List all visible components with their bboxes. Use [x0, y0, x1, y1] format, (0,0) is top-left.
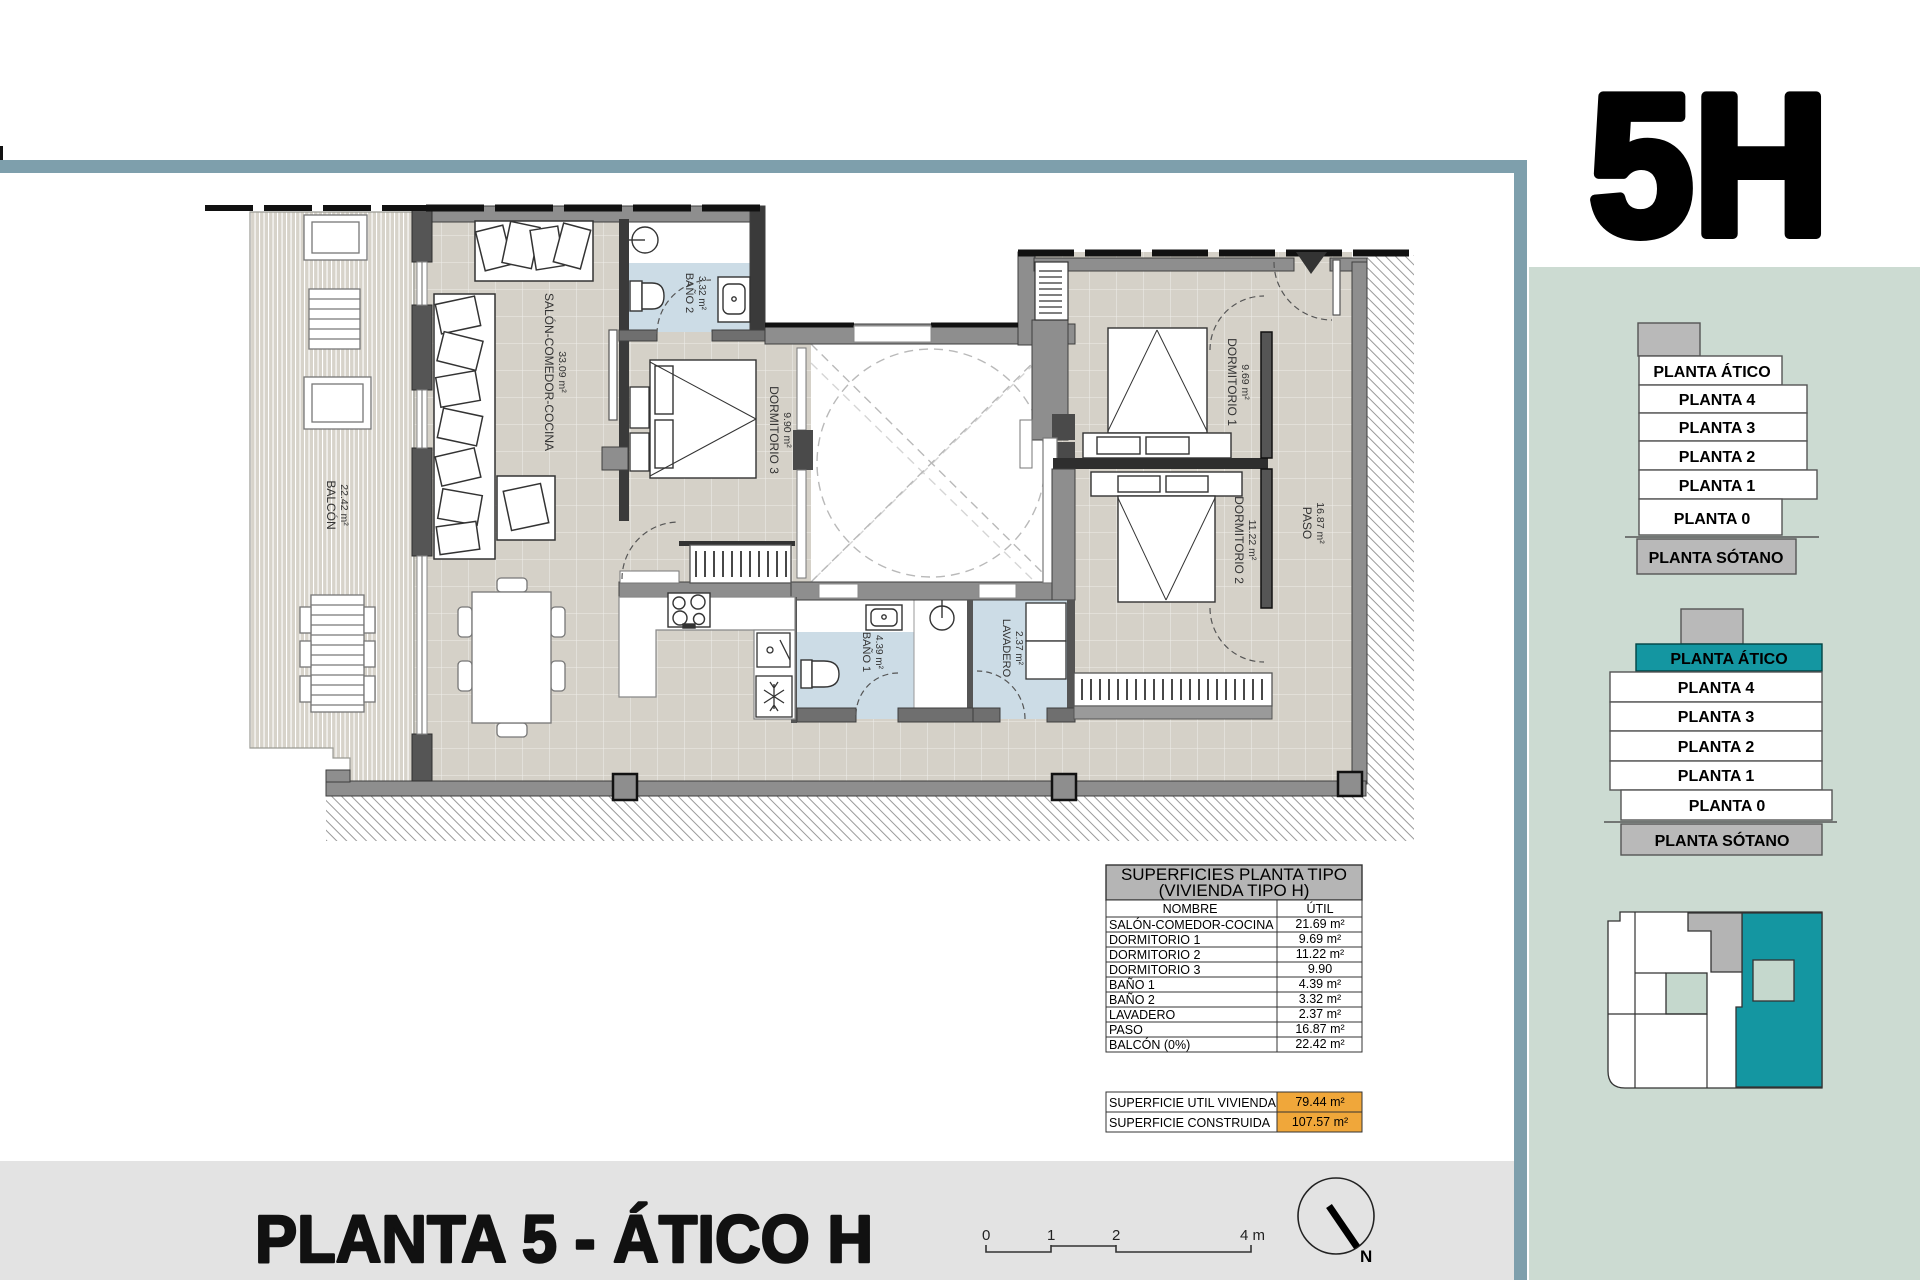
svg-text:(VIVIENDA TIPO H): (VIVIENDA TIPO H) [1159, 881, 1310, 900]
svg-text:BALCÓN (0%): BALCÓN (0%) [1109, 1037, 1190, 1052]
svg-text:0: 0 [982, 1227, 990, 1244]
svg-text:BAÑO 1: BAÑO 1 [860, 632, 873, 672]
svg-text:4 m: 4 m [1240, 1227, 1265, 1244]
svg-text:PASO: PASO [1300, 507, 1314, 539]
svg-text:DORMITORIO 2: DORMITORIO 2 [1109, 948, 1200, 962]
svg-text:DORMITORIO 1: DORMITORIO 1 [1109, 933, 1200, 947]
svg-text:3.32 m²: 3.32 m² [696, 276, 707, 311]
svg-text:PLANTA 2: PLANTA 2 [1679, 449, 1756, 466]
svg-text:NOMBRE: NOMBRE [1163, 902, 1218, 916]
svg-text:9.90 m²: 9.90 m² [781, 412, 793, 448]
svg-text:PLANTA 4: PLANTA 4 [1678, 680, 1755, 697]
svg-text:PLANTA 5 - ÁTICO H: PLANTA 5 - ÁTICO H [255, 1202, 873, 1277]
svg-text:N: N [1360, 1247, 1372, 1266]
svg-text:PLANTA SÓTANO: PLANTA SÓTANO [1655, 831, 1790, 850]
svg-text:PLANTA 1: PLANTA 1 [1678, 768, 1755, 785]
svg-text:16.87 m²: 16.87 m² [1295, 1022, 1344, 1036]
svg-text:107.57 m²: 107.57 m² [1292, 1115, 1348, 1129]
svg-text:22.42 m²: 22.42 m² [1295, 1037, 1344, 1051]
svg-text:BAÑO 2: BAÑO 2 [683, 273, 696, 313]
svg-text:PASO: PASO [1109, 1023, 1143, 1037]
svg-text:5H: 5H [1589, 54, 1829, 277]
svg-text:PLANTA 4: PLANTA 4 [1679, 392, 1756, 409]
svg-text:PLANTA 0: PLANTA 0 [1689, 798, 1766, 815]
svg-text:DORMITORIO 3: DORMITORIO 3 [1109, 963, 1200, 977]
svg-text:PLANTA SÓTANO: PLANTA SÓTANO [1649, 548, 1784, 567]
svg-text:2: 2 [1112, 1227, 1120, 1244]
svg-text:4.39 m²: 4.39 m² [1299, 977, 1341, 991]
svg-text:BAÑO 1: BAÑO 1 [1109, 978, 1155, 992]
svg-text:SUPERFICIE UTIL VIVIENDA: SUPERFICIE UTIL VIVIENDA [1109, 1096, 1277, 1110]
svg-text:PLANTA 0: PLANTA 0 [1674, 511, 1751, 528]
svg-text:3.32 m²: 3.32 m² [1299, 992, 1341, 1006]
svg-text:9.69 m²: 9.69 m² [1239, 364, 1251, 400]
svg-text:PLANTA ÁTICO: PLANTA ÁTICO [1670, 649, 1787, 668]
svg-text:SALÓN-COMEDOR-COCINA: SALÓN-COMEDOR-COCINA [1109, 917, 1274, 932]
svg-text:1: 1 [1047, 1227, 1055, 1244]
svg-text:LAVADERO: LAVADERO [1000, 619, 1012, 678]
svg-text:SUPERFICIE CONSTRUIDA: SUPERFICIE CONSTRUIDA [1109, 1116, 1271, 1130]
svg-text:PLANTA 1: PLANTA 1 [1679, 478, 1756, 495]
svg-text:9.69 m²: 9.69 m² [1299, 932, 1341, 946]
svg-text:LAVADERO: LAVADERO [1109, 1008, 1176, 1022]
svg-text:2.37 m²: 2.37 m² [1013, 631, 1024, 666]
svg-text:33.09 m²: 33.09 m² [556, 351, 568, 393]
svg-text:DORMITORIO 3: DORMITORIO 3 [767, 386, 781, 474]
svg-text:21.69 m²: 21.69 m² [1295, 917, 1344, 931]
svg-text:ÚTIL: ÚTIL [1306, 901, 1333, 916]
svg-text:22.42 m²: 22.42 m² [338, 484, 350, 526]
svg-text:BALCÓN: BALCÓN [324, 480, 339, 529]
svg-text:2.37 m²: 2.37 m² [1299, 1007, 1341, 1021]
svg-text:11.22 m²: 11.22 m² [1296, 947, 1344, 961]
svg-text:PLANTA 2: PLANTA 2 [1678, 739, 1755, 756]
svg-text:11.22 m²: 11.22 m² [1246, 520, 1258, 561]
svg-text:16.87 m²: 16.87 m² [1314, 502, 1326, 544]
svg-text:9.90: 9.90 [1308, 962, 1332, 976]
svg-text:SALÓN-COMEDOR-COCINA: SALÓN-COMEDOR-COCINA [542, 293, 557, 451]
svg-text:DORMITORIO 1: DORMITORIO 1 [1225, 338, 1239, 426]
svg-text:DORMITORIO 2: DORMITORIO 2 [1232, 496, 1246, 584]
svg-text:PLANTA 3: PLANTA 3 [1678, 709, 1755, 726]
svg-text:BAÑO 2: BAÑO 2 [1109, 993, 1155, 1007]
svg-text:79.44 m²: 79.44 m² [1295, 1095, 1344, 1109]
svg-text:PLANTA 3: PLANTA 3 [1679, 420, 1756, 437]
svg-text:PLANTA ÁTICO: PLANTA ÁTICO [1653, 362, 1770, 381]
svg-text:4.39 m²: 4.39 m² [873, 635, 884, 670]
